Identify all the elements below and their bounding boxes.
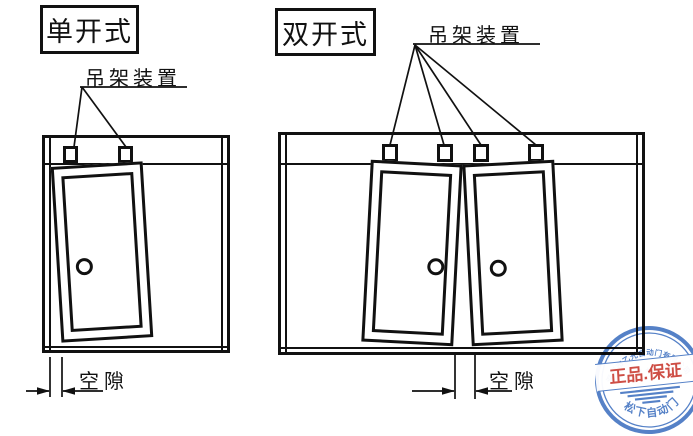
gap-label-single: 空隙 (79, 365, 129, 394)
frame-inner-line-left (285, 135, 287, 352)
door-leaf-right (462, 160, 563, 347)
double-type-title: 双开式 (282, 13, 369, 52)
hanger-device-label-single: 吊架装置 (85, 62, 181, 91)
door-panel (372, 170, 452, 336)
hanger-bracket (437, 144, 453, 162)
single-type-title-box: 单开式 (40, 5, 139, 54)
hanger-device-label-double: 吊架装置 (428, 19, 524, 48)
leader-line (415, 45, 536, 145)
door-panel (473, 170, 553, 336)
hanger-bracket (118, 146, 133, 163)
leader-line (415, 45, 481, 145)
door-leaf-single (51, 161, 154, 342)
leader-line (415, 45, 444, 145)
dimension-arrow (442, 387, 455, 395)
gap-label-double: 空隙 (489, 365, 539, 394)
leader-line (390, 45, 415, 145)
dimension-arrow (37, 387, 50, 395)
quality-stamp: 深圳市乙光自动门有限公司 ★ ★ ★ 正品.保证 松下自动门 (585, 316, 693, 436)
dimension-arrow (62, 387, 75, 395)
hanger-bracket (382, 144, 398, 162)
frame-inner-line-right (636, 135, 638, 352)
frame-inner-line-right (221, 138, 223, 350)
hanger-bracket (528, 144, 544, 162)
double-type-title-box: 双开式 (275, 8, 376, 56)
hanger-bracket (473, 144, 489, 162)
diagram-page: 单开式 吊架装置 空隙 双开式 吊架装置 空隙 (0, 0, 693, 436)
single-type-title: 单开式 (46, 10, 133, 49)
door-panel (61, 172, 142, 332)
hanger-bracket (63, 146, 78, 163)
frame-inner-line-bottom (45, 346, 227, 348)
door-leaf-left (361, 160, 462, 347)
dimension-arrow (475, 387, 488, 395)
